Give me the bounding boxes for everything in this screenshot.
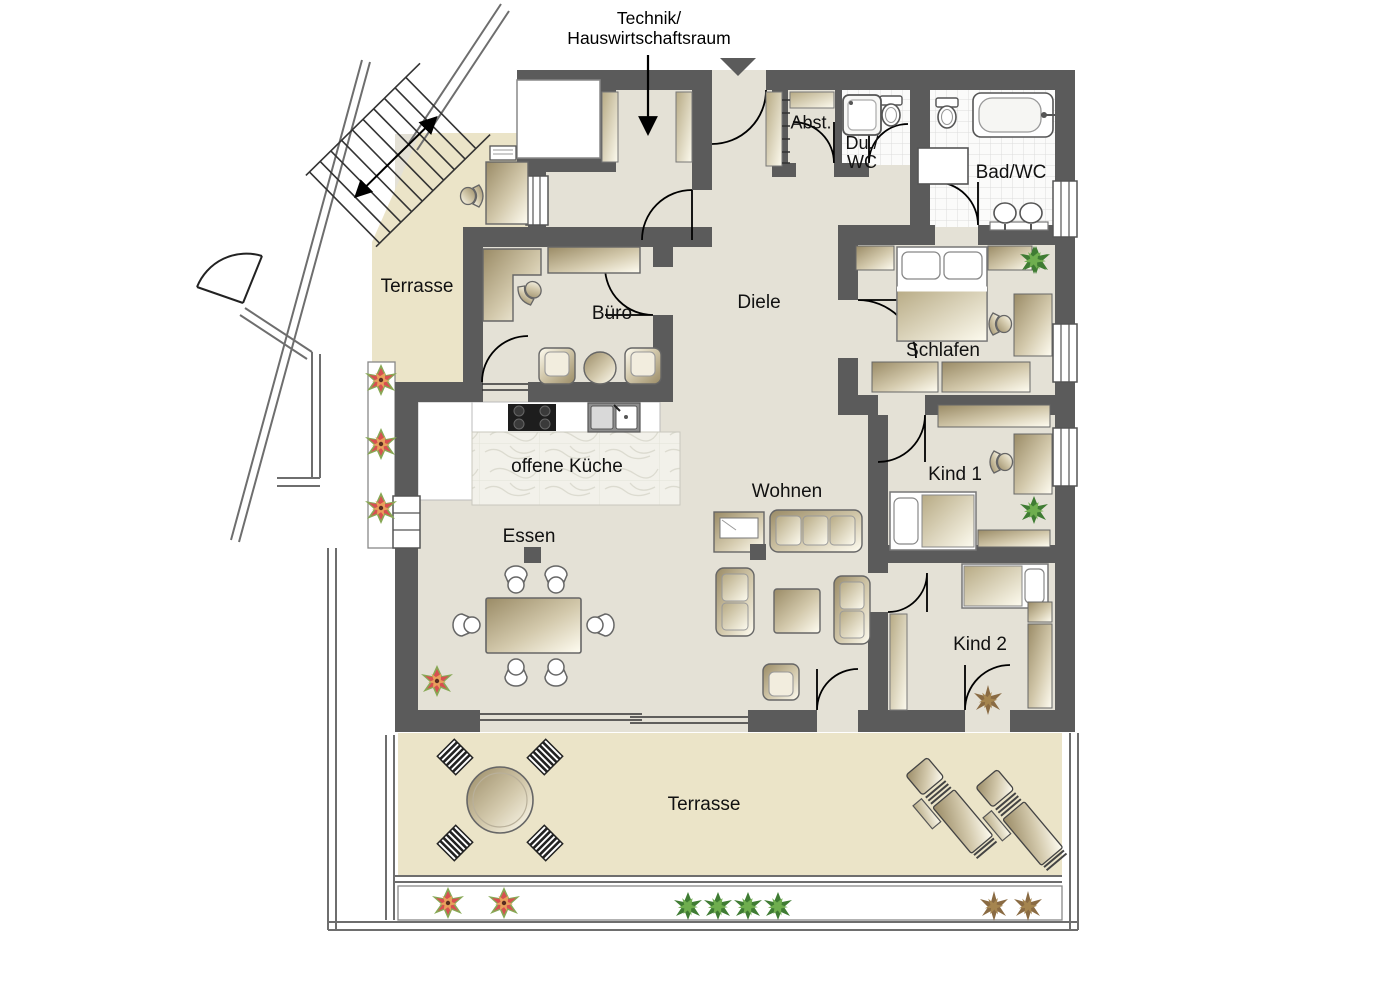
loveseat <box>834 576 870 644</box>
window-buero-terrasse <box>526 176 548 225</box>
wardrobe <box>1028 624 1052 708</box>
label-abstellraum: Abst. <box>790 114 831 133</box>
round-garden-table <box>467 767 533 833</box>
desk <box>486 162 528 224</box>
sideboard <box>548 247 640 273</box>
toilet-icon <box>936 98 958 128</box>
tall-cabinet <box>890 614 907 710</box>
annotation-line2: Hauswirtschaftsraum <box>567 28 730 48</box>
dining-chair <box>545 566 567 593</box>
armchair <box>763 664 799 700</box>
column <box>524 547 541 563</box>
coffee-table <box>774 589 820 633</box>
window-essen <box>393 496 420 548</box>
label-du-wc-line1: Du./ <box>845 134 878 153</box>
washing-machine-icon <box>918 148 968 184</box>
label-terrasse-links: Terrasse <box>381 277 454 297</box>
dining-chair <box>453 614 480 636</box>
label-essen: Essen <box>503 527 556 547</box>
label-diele: Diele <box>737 293 780 313</box>
side-table <box>584 352 616 384</box>
dining-chair <box>545 659 567 686</box>
shower-icon <box>843 95 881 135</box>
label-offene-kueche: offene Küche <box>511 457 623 477</box>
label-du-wc: Du./ WC <box>845 134 878 172</box>
wardrobe <box>938 405 1050 427</box>
cabinet <box>1028 602 1052 622</box>
armchair <box>625 348 661 384</box>
printer <box>490 146 516 160</box>
loveseat <box>716 568 754 636</box>
label-schlafen: Schlafen <box>906 341 980 361</box>
desk <box>1014 294 1052 356</box>
sofa <box>770 510 862 552</box>
toilet-icon <box>880 96 902 126</box>
single-bed <box>962 564 1048 608</box>
dresser <box>978 530 1050 547</box>
bedside-cabinet <box>856 246 894 270</box>
abst-shelf <box>790 92 834 108</box>
floorplan-drawing <box>0 0 1399 988</box>
dresser <box>872 362 938 392</box>
label-wohnen: Wohnen <box>752 482 822 502</box>
shaft <box>517 80 600 158</box>
sink-icon <box>588 403 640 432</box>
annotation-technik: Technik/ Hauswirtschaftsraum <box>567 8 730 48</box>
bathtub-icon <box>973 93 1055 137</box>
dining-chair <box>505 566 527 593</box>
window-kind1 <box>1053 428 1077 486</box>
dining-table <box>486 598 581 653</box>
kitchen-block <box>418 402 472 500</box>
label-kind-1: Kind 1 <box>928 465 982 485</box>
double-bed <box>897 247 987 341</box>
cabinet <box>602 92 618 162</box>
dresser <box>942 362 1030 392</box>
dining-chair <box>587 614 614 636</box>
office-chair <box>990 451 1013 473</box>
window-schlafen <box>1053 324 1077 382</box>
floorplan-page: Technik/ Hauswirtschaftsraum Abst. Du./ … <box>0 0 1399 988</box>
office-chair <box>461 185 484 207</box>
window-bad <box>1053 181 1077 237</box>
label-bad-wc: Bad/WC <box>976 163 1047 183</box>
cooktop-icon <box>508 404 556 431</box>
label-buero: Büro <box>592 304 632 324</box>
label-kind-2: Kind 2 <box>953 635 1007 655</box>
office-chair <box>989 313 1012 335</box>
desk <box>1014 434 1052 494</box>
armchair <box>539 348 575 384</box>
label-terrasse-unten: Terrasse <box>668 795 741 815</box>
cabinet <box>676 92 692 162</box>
exterior-cutout <box>393 68 532 134</box>
single-bed <box>890 492 976 550</box>
dining-chair <box>505 659 527 686</box>
annotation-line1: Technik/ <box>567 8 730 28</box>
label-du-wc-line2: WC <box>845 153 878 172</box>
